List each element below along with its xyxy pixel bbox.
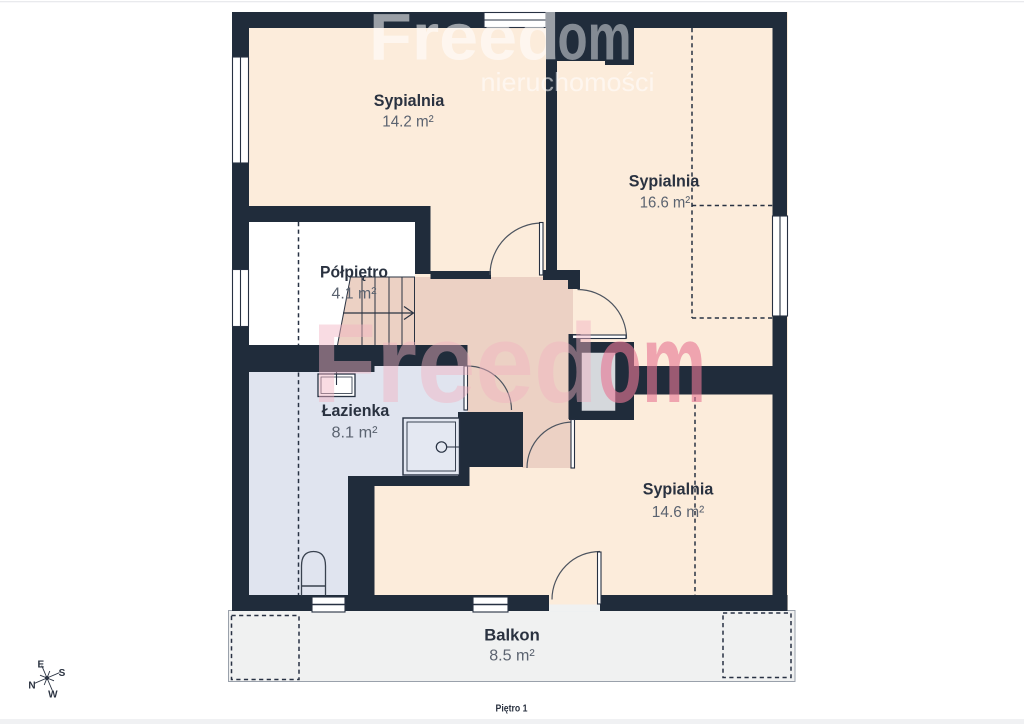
svg-text:14.6 m²: 14.6 m² [652, 504, 705, 521]
svg-text:S: S [59, 668, 66, 679]
svg-text:nieruchomości: nieruchomości [481, 67, 655, 97]
svg-text:Freed: Freed [369, 0, 560, 74]
svg-text:om: om [558, 0, 632, 74]
svg-text:Sypialnia: Sypialnia [374, 91, 445, 110]
svg-text:16.6 m²: 16.6 m² [640, 195, 691, 212]
svg-text:14.2 m²: 14.2 m² [382, 114, 434, 131]
svg-text:Piętro 1: Piętro 1 [496, 703, 528, 715]
svg-text:W: W [48, 690, 58, 701]
svg-text:8.5 m²: 8.5 m² [489, 648, 535, 665]
svg-text:Sypialnia: Sypialnia [643, 480, 714, 499]
svg-text:E: E [37, 660, 44, 671]
svg-text:om: om [598, 301, 706, 426]
svg-text:Balkon: Balkon [484, 626, 540, 645]
svg-text:Sypialnia: Sypialnia [629, 172, 700, 191]
svg-text:Półpiętro: Półpiętro [320, 263, 388, 282]
svg-text:4.1 m²: 4.1 m² [332, 286, 378, 303]
svg-text:Łazienka: Łazienka [322, 401, 390, 420]
svg-text:N: N [28, 681, 35, 692]
svg-text:8.1 m²: 8.1 m² [332, 425, 379, 442]
